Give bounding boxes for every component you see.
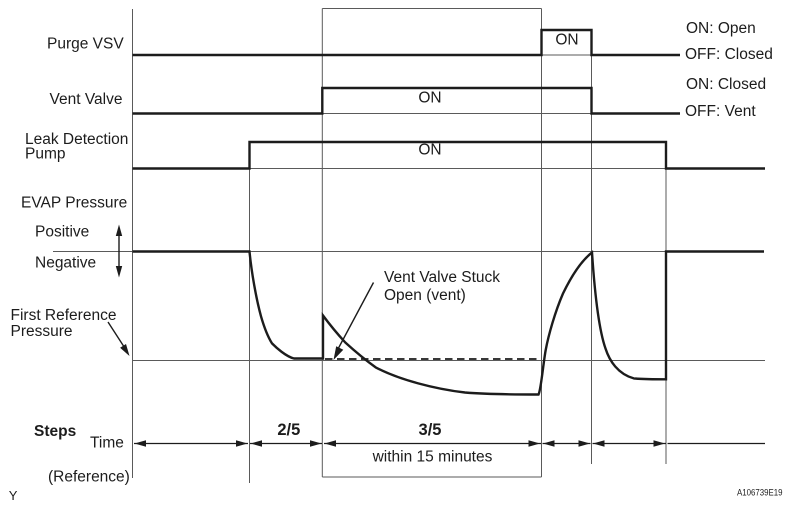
svg-text:Negative: Negative [35, 255, 96, 272]
svg-text:OFF: Vent: OFF: Vent [685, 103, 756, 120]
svg-text:ON: Open: ON: Open [686, 20, 756, 37]
svg-text:Pressure: Pressure [11, 323, 73, 340]
svg-text:Purge VSV: Purge VSV [47, 36, 124, 53]
svg-text:(Reference): (Reference) [48, 469, 130, 486]
svg-text:Time: Time [90, 435, 124, 452]
svg-text:ON: ON [555, 32, 578, 49]
svg-text:Positive: Positive [35, 224, 89, 241]
svg-text:Pump: Pump [25, 146, 66, 163]
svg-text:ON: Closed: ON: Closed [686, 76, 766, 93]
svg-text:ON: ON [418, 142, 441, 159]
svg-text:ON: ON [418, 90, 441, 107]
svg-text:3/5: 3/5 [419, 421, 442, 439]
svg-text:A106739E19: A106739E19 [737, 488, 783, 498]
svg-text:First Reference: First Reference [11, 307, 117, 324]
svg-text:Steps: Steps [34, 423, 76, 440]
svg-text:OFF: Closed: OFF: Closed [685, 46, 773, 63]
svg-text:EVAP Pressure: EVAP Pressure [21, 195, 127, 212]
svg-text:Open (vent): Open (vent) [384, 287, 466, 304]
svg-text:Y: Y [9, 488, 18, 503]
svg-text:Vent Valve Stuck: Vent Valve Stuck [384, 269, 500, 286]
svg-text:2/5: 2/5 [277, 421, 300, 439]
svg-text:Vent Valve: Vent Valve [50, 91, 123, 108]
svg-text:within 15 minutes: within 15 minutes [372, 449, 493, 466]
